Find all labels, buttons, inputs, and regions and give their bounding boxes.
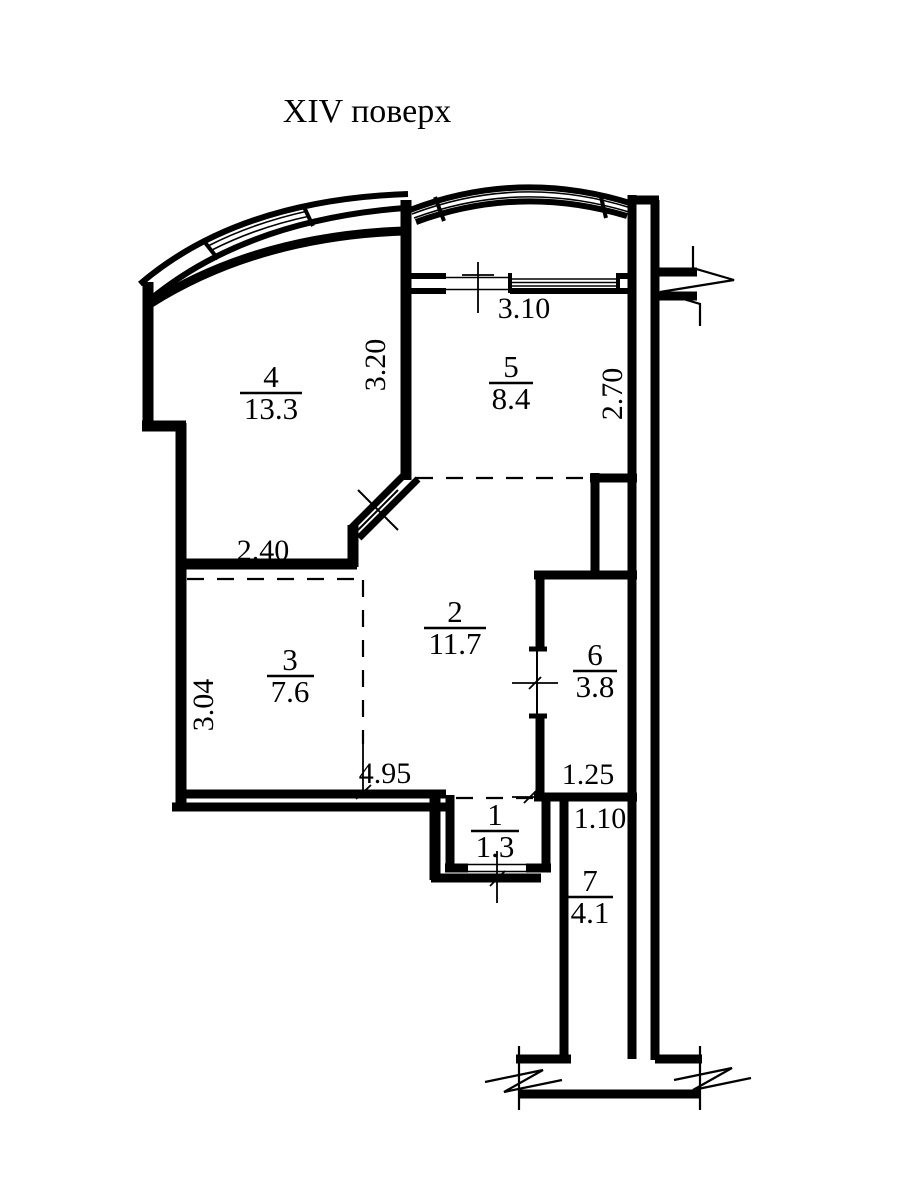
room-label-6: 6 3.8 [573,637,617,704]
room-label-1: 1 1.3 [471,797,519,864]
dashed-partitions [187,478,588,798]
dim-room7-width: 1.10 [574,802,627,835]
dim-room4-depth: 3.20 [359,339,392,392]
floor-plan-page: XIV поверх [0,0,900,1200]
room-4-area: 13.3 [244,391,298,426]
room-6-number: 6 [587,637,603,672]
dim-room6-width: 1.25 [562,758,615,791]
window-glazing-room5 [512,279,616,286]
room-label-7: 7 4.1 [567,863,613,930]
dim-line-room5-window [462,262,494,313]
dim-room3-depth: 3.04 [187,679,220,732]
room-label-3: 3 7.6 [267,642,314,709]
break-right-wall [660,246,734,326]
dim-room3-width: 4.95 [359,757,412,790]
break-bottom-right [674,1068,751,1090]
room-3-area: 7.6 [271,674,310,709]
room-2-area: 11.7 [428,626,481,661]
room-label-5: 5 8.4 [489,349,533,416]
room-1-number: 1 [487,797,503,832]
room-5-number: 5 [503,349,519,384]
room-7-area: 4.1 [571,895,610,930]
wall-medium [151,195,702,1094]
room-1-area: 1.3 [476,829,515,864]
floor-title: XIV поверх [283,93,451,130]
dim-room4-width: 2.40 [237,534,290,567]
room-label-2: 2 11.7 [424,594,486,661]
room-2-number: 2 [447,594,463,629]
break-bottom-left [485,1070,562,1092]
room-7-number: 7 [582,863,598,898]
dim-room5-depth: 2.70 [596,368,629,421]
floor-plan-drawing: XIV поверх [0,0,900,1200]
room-label-4: 4 13.3 [240,359,302,426]
room-6-area: 3.8 [576,669,615,704]
room-4-number: 4 [263,359,279,394]
walls [140,187,702,1094]
diagonal-door-swing [358,490,398,530]
room-5-area: 8.4 [492,381,531,416]
dim-line-room6-door [512,677,558,689]
room-3-number: 3 [282,642,298,677]
dim-room5-window: 3.10 [498,292,551,325]
